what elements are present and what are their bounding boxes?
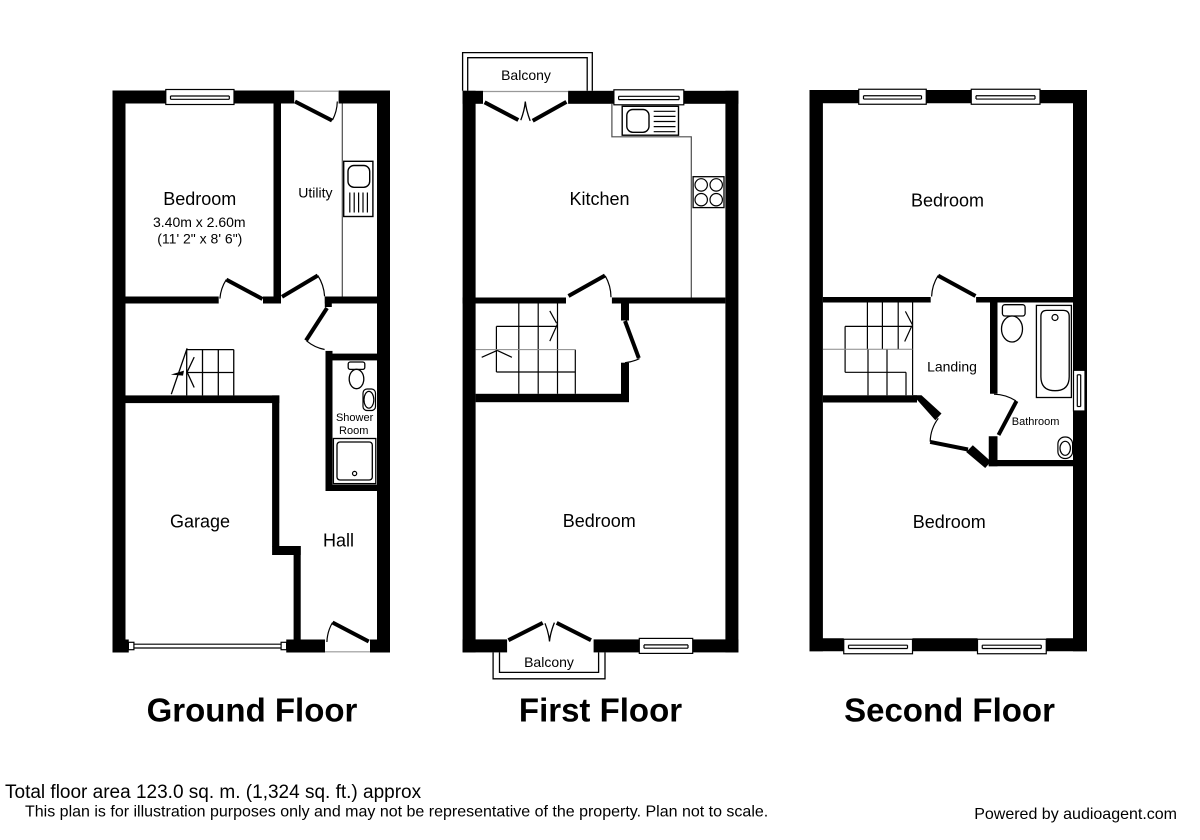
- svg-text:3.40m x 2.60m: 3.40m x 2.60m: [153, 214, 246, 230]
- svg-text:Room: Room: [339, 425, 368, 437]
- svg-text:Powered by audioagent.com: Powered by audioagent.com: [974, 806, 1177, 823]
- svg-text:Kitchen: Kitchen: [569, 189, 629, 209]
- svg-text:Ground Floor: Ground Floor: [147, 692, 358, 729]
- svg-text:Bedroom: Bedroom: [913, 512, 986, 532]
- svg-text:Bathroom: Bathroom: [1012, 416, 1060, 428]
- svg-text:Shower: Shower: [336, 412, 374, 424]
- svg-text:First Floor: First Floor: [519, 692, 682, 729]
- svg-text:Garage: Garage: [170, 512, 230, 532]
- svg-text:This plan is for illustration: This plan is for illustration purposes o…: [25, 804, 768, 821]
- svg-text:(11' 2" x 8' 6"): (11' 2" x 8' 6"): [157, 231, 242, 247]
- svg-text:Hall: Hall: [323, 531, 354, 551]
- svg-text:Utility: Utility: [298, 185, 332, 201]
- svg-text:Bedroom: Bedroom: [563, 511, 636, 531]
- svg-text:Second Floor: Second Floor: [844, 692, 1055, 729]
- svg-text:Bedroom: Bedroom: [911, 191, 984, 211]
- svg-text:Total floor area 123.0 sq. m.: Total floor area 123.0 sq. m. (1,324 sq.…: [5, 782, 422, 803]
- svg-text:Balcony: Balcony: [524, 654, 574, 670]
- svg-text:Balcony: Balcony: [501, 67, 551, 83]
- svg-text:Bedroom: Bedroom: [163, 189, 236, 209]
- svg-text:Landing: Landing: [927, 358, 977, 374]
